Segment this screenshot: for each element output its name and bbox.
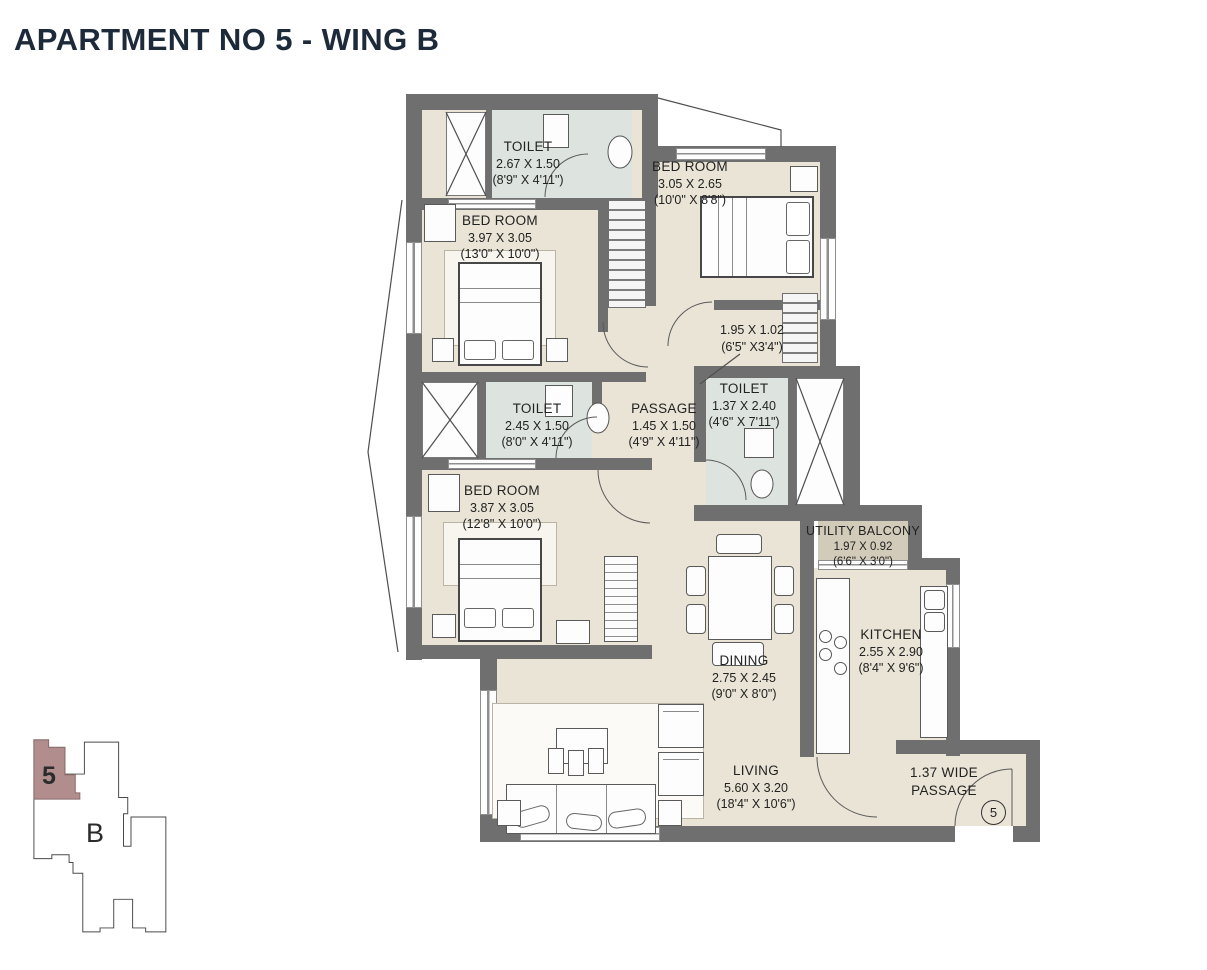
dining-chair (774, 604, 794, 634)
side-table (658, 800, 682, 826)
entry-marker-number: 5 (990, 805, 997, 820)
pillow (502, 608, 534, 628)
wall-duct-divider (788, 378, 796, 505)
label-passage: PASSAGE 1.45 X 1.50 (4'9" X 4'11") (628, 400, 699, 451)
wall-toilet-mid-right (592, 372, 602, 412)
label-lobby-dims: 1.95 X 1.02 (6'5" X3'4") (720, 322, 784, 355)
label-bedroom-top-right: BED ROOM 3.05 X 2.65 (10'0" X 8'8") (652, 158, 728, 209)
wall-duct-right (844, 366, 860, 517)
kitchen-sink (924, 590, 945, 610)
floor-passage-link (808, 754, 908, 826)
pillow (464, 340, 496, 360)
entry-marker-circle: 5 (981, 800, 1006, 825)
label-dining: DINING 2.75 X 2.45 (9'0" X 8'0") (711, 652, 776, 703)
label-utility-balcony: UTILITY BALCONY 1.97 X 0.92 (6'6" X 3'0"… (806, 523, 920, 570)
wardrobe-bedroom-bottom (604, 556, 638, 642)
window-kitchen-right (946, 584, 960, 648)
window-bedroom-left-top (448, 199, 536, 209)
armchair (658, 752, 704, 796)
dining-chair (686, 604, 706, 634)
armchair (658, 704, 704, 748)
wall-shaft-divider-top (486, 108, 492, 198)
label-kitchen: KITCHEN 2.55 X 2.90 (8'4" X 9'6") (858, 626, 923, 677)
key-plan-wing-label: B (86, 818, 104, 849)
duct-shaft-top (446, 112, 486, 196)
ottoman (548, 748, 564, 774)
desk-bedroom-left (424, 204, 456, 242)
key-plan-outline (16, 722, 231, 966)
key-plan-unit-label: 5 (42, 762, 56, 791)
wall-top-toilet (406, 94, 658, 110)
ottoman (588, 748, 604, 774)
window-bedroom-left (406, 242, 422, 334)
key-plan: 5 B (16, 722, 231, 966)
dresser-bedroom-top-right (790, 166, 818, 192)
label-toilet-mid: TOILET 2.45 X 1.50 (8'0" X 4'11") (501, 400, 572, 451)
label-wide-passage: 1.37 WIDE PASSAGE (910, 764, 978, 800)
page-title: APARTMENT NO 5 - WING B (14, 22, 439, 58)
side-table (497, 800, 521, 826)
pillow (464, 608, 496, 628)
wall-toilet-right-top (694, 366, 860, 378)
desk-bedroom-bottom (428, 474, 460, 512)
dining-chair (716, 534, 762, 554)
label-bedroom-left: BED ROOM 3.97 X 3.05 (13'0" X 10'0") (461, 212, 540, 263)
window-bedroom-bottom-left (406, 516, 422, 608)
pillow (502, 340, 534, 360)
duct-shaft-mid (422, 382, 478, 458)
dining-chair (774, 566, 794, 596)
bedside-table (432, 338, 454, 362)
label-toilet-right: TOILET 1.37 X 2.40 (4'6" X 7'11") (708, 380, 779, 431)
window-bedroom-tr-right (820, 238, 836, 320)
duct-shaft-right (796, 378, 844, 505)
label-living: LIVING 5.60 X 3.20 (18'4" X 10'6") (717, 762, 796, 813)
bedside-table (546, 338, 568, 362)
floor-plan-page: APARTMENT NO 5 - WING B (0, 0, 1207, 970)
staircase-main (608, 200, 646, 308)
key-plan-unit-highlight (34, 740, 80, 799)
pillow (786, 202, 810, 236)
label-bedroom-bottom: BED ROOM 3.87 X 3.05 (12'8" X 10'0") (463, 482, 542, 533)
entry-door-opening (955, 826, 1013, 842)
wall-shaft-divider-mid (478, 372, 486, 458)
hob-burners (818, 628, 848, 678)
bedside-table (432, 614, 456, 638)
wall-passage-top (896, 740, 1040, 754)
pillow (786, 240, 810, 274)
window-bedroom-bottom-top (448, 459, 536, 469)
dining-table (708, 556, 772, 640)
wall-bedroom-left-right (598, 198, 608, 332)
bedside-table (556, 620, 590, 644)
wc-toilet-right (744, 428, 774, 458)
dining-chair (686, 566, 706, 596)
staircase-secondary (782, 293, 818, 363)
kitchen-sink (924, 612, 945, 632)
wall-toilet-mid-top (406, 372, 646, 382)
ottoman (568, 750, 584, 776)
wall-bedroom-bottom-bottom (406, 645, 652, 659)
label-toilet-top: TOILET 2.67 X 1.50 (8'9" X 4'11") (492, 138, 563, 189)
